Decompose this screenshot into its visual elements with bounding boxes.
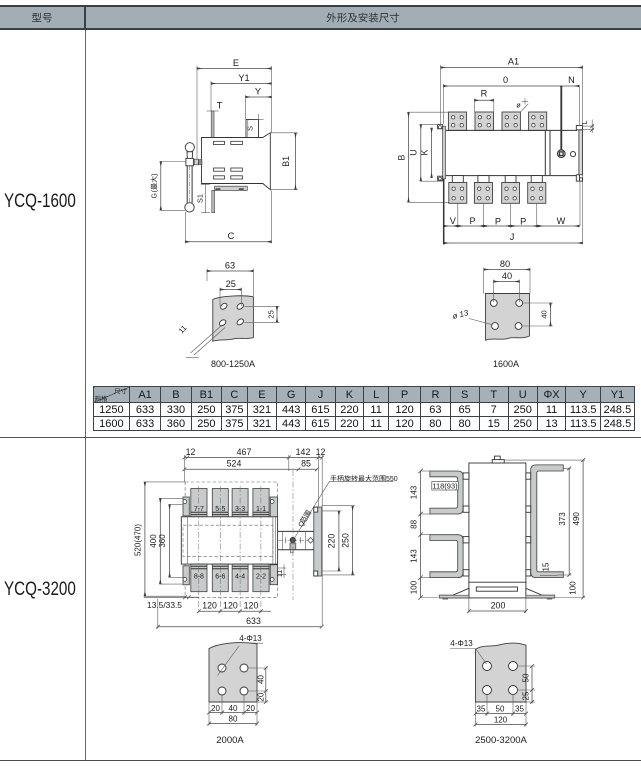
svg-text:25: 25: [266, 310, 275, 318]
svg-text:20: 20: [246, 704, 255, 713]
svg-text:35: 35: [477, 705, 486, 714]
svg-text:50: 50: [496, 705, 505, 714]
svg-text:W: W: [557, 216, 566, 226]
svg-text:467: 467: [237, 447, 252, 457]
svg-text:P: P: [495, 216, 501, 226]
svg-text:120: 120: [223, 601, 238, 611]
svg-text:120: 120: [202, 601, 217, 611]
svg-text:ø 13: ø 13: [452, 308, 470, 321]
svg-text:Y1: Y1: [238, 73, 249, 83]
svg-text:P: P: [520, 216, 526, 226]
svg-text:N: N: [568, 75, 575, 85]
svg-text:20: 20: [257, 692, 266, 701]
svg-text:P: P: [470, 216, 476, 226]
svg-text:120: 120: [494, 715, 508, 724]
svg-text:63: 63: [225, 261, 235, 271]
svg-text:142: 142: [296, 447, 311, 457]
svg-text:143: 143: [409, 549, 418, 563]
svg-text:J: J: [510, 232, 515, 242]
svg-text:550: 550: [386, 476, 398, 483]
svg-text:E: E: [233, 58, 239, 68]
svg-text:Y: Y: [255, 87, 261, 97]
svg-text:R: R: [481, 89, 488, 99]
svg-text:800-1250A: 800-1250A: [211, 359, 255, 369]
svg-text:L: L: [582, 120, 589, 124]
svg-text:250: 250: [340, 533, 350, 548]
svg-text:S1: S1: [196, 194, 205, 203]
svg-text:13.5/33.5: 13.5/33.5: [147, 600, 182, 610]
svg-text:220: 220: [327, 534, 337, 549]
svg-text:120: 120: [244, 601, 259, 611]
svg-text:U: U: [409, 149, 419, 155]
svg-text:25: 25: [226, 279, 236, 289]
svg-text:40: 40: [540, 310, 549, 318]
svg-text:143: 143: [409, 485, 418, 499]
svg-text:373: 373: [558, 512, 567, 526]
svg-text:100: 100: [409, 580, 418, 594]
svg-text:40: 40: [229, 704, 238, 713]
svg-text:12: 12: [316, 447, 326, 457]
svg-text:G: G: [152, 193, 159, 198]
svg-text:1600A: 1600A: [493, 359, 519, 369]
svg-text:40: 40: [502, 271, 512, 281]
svg-text:T: T: [217, 101, 223, 111]
svg-text:40: 40: [257, 675, 266, 684]
svg-text:C: C: [228, 231, 235, 241]
svg-text:2000A: 2000A: [216, 735, 244, 746]
svg-text:V: V: [450, 216, 457, 226]
svg-text:35: 35: [515, 705, 524, 714]
svg-text:K: K: [420, 149, 430, 155]
svg-text:A1: A1: [508, 57, 519, 67]
svg-text:100: 100: [569, 581, 578, 595]
svg-text:85: 85: [301, 459, 311, 469]
svg-text:B1: B1: [281, 156, 291, 167]
svg-text:0: 0: [503, 75, 508, 85]
svg-text:2500-3200A: 2500-3200A: [475, 735, 527, 746]
svg-text:12: 12: [186, 447, 196, 457]
svg-text:(: (: [152, 189, 159, 192]
svg-text:200: 200: [491, 601, 506, 611]
svg-text:4-Φ13: 4-Φ13: [239, 634, 262, 643]
svg-text:ø: ø: [516, 103, 521, 110]
svg-text:490: 490: [572, 512, 581, 526]
svg-text:360: 360: [158, 534, 167, 548]
svg-text:11: 11: [277, 570, 284, 577]
svg-text:25: 25: [522, 691, 531, 700]
svg-text:S: S: [246, 126, 255, 131]
svg-text:B: B: [397, 154, 407, 160]
svg-text:118(93): 118(93): [432, 481, 458, 490]
svg-text:4-Φ13: 4-Φ13: [450, 639, 473, 648]
svg-text:11: 11: [177, 323, 189, 335]
svg-text:80: 80: [500, 259, 510, 269]
svg-text:): ): [152, 174, 159, 176]
svg-text:400: 400: [149, 534, 158, 548]
svg-text:80: 80: [229, 715, 238, 724]
svg-text:20: 20: [211, 704, 220, 713]
svg-text:633: 633: [246, 616, 261, 626]
svg-text:88: 88: [409, 519, 418, 528]
svg-text:50: 50: [522, 673, 531, 682]
svg-text:15: 15: [541, 562, 550, 571]
svg-text:524: 524: [227, 459, 242, 469]
svg-text:520(470): 520(470): [134, 524, 143, 556]
